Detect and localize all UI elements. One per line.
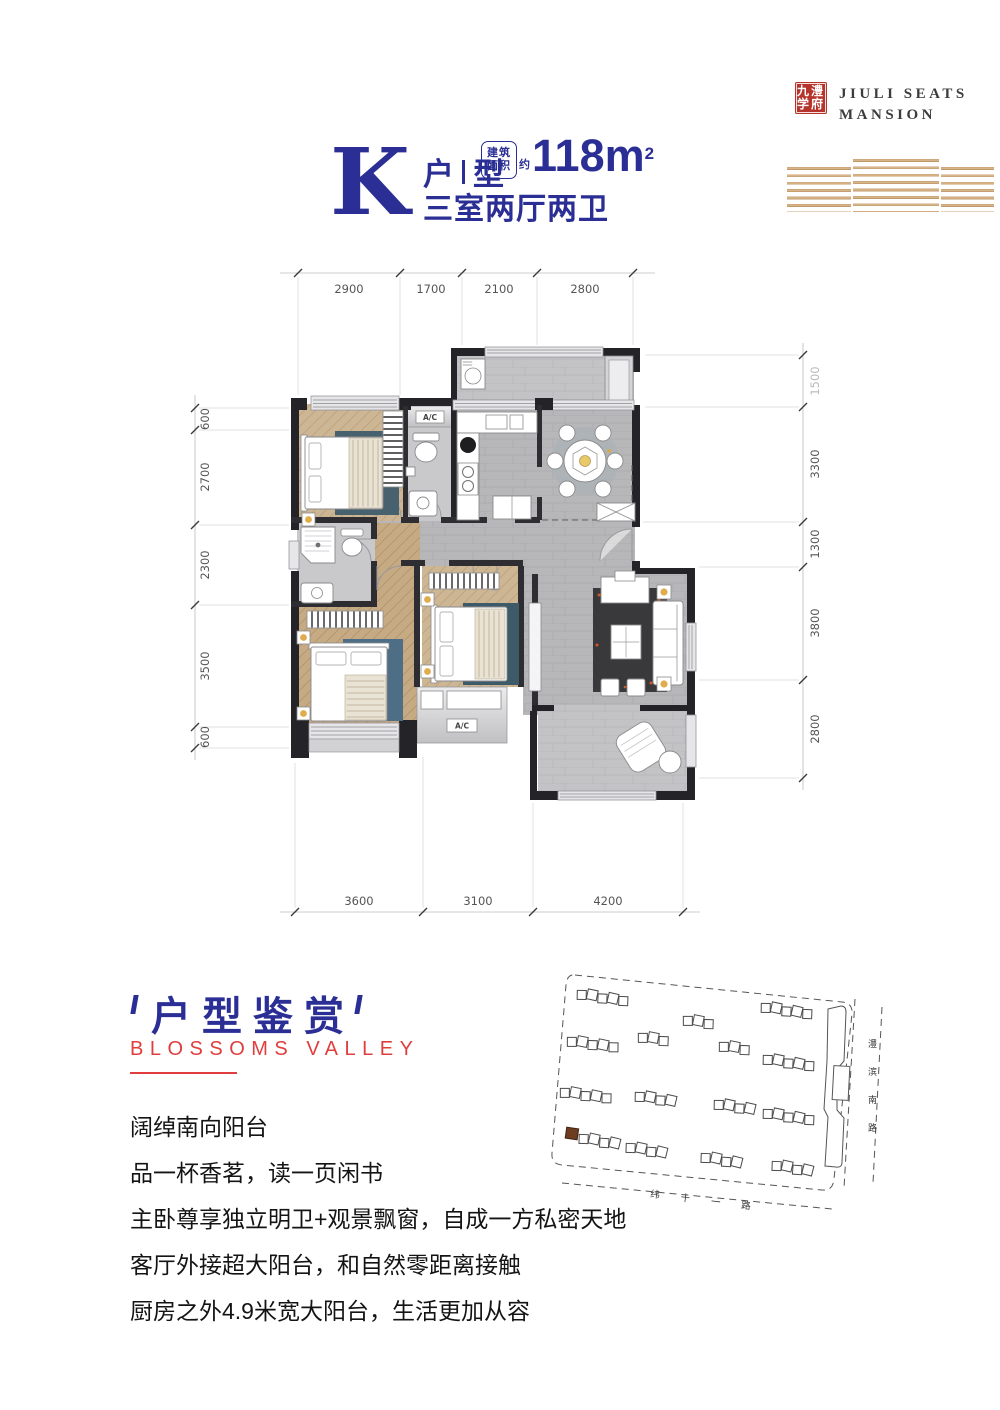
brand-name-line1: JIULI SEATS (839, 84, 968, 105)
dim-bottom-2: 3100 (463, 894, 492, 908)
dim-left-2: 2700 (198, 462, 212, 491)
section-subheading: BLOSSOMS VALLEY (130, 1038, 419, 1061)
logo-row2: 学府 (797, 98, 825, 111)
area-value: 118m2 (532, 133, 654, 178)
brand-name-line2: MANSION (839, 105, 968, 126)
dim-left-3: 2300 (198, 550, 212, 579)
gold-stripe-middle (853, 159, 939, 212)
sitemap-svg: 纬 十 一 路 澧 滨 南 路 (540, 955, 1000, 1225)
sitemap-strip-block (832, 1066, 850, 1101)
dim-top-4: 2800 (570, 282, 599, 296)
area-box-line1: 建筑 (482, 147, 516, 160)
brochure-page: 九澧 学府 JIULI SEATS MANSION K 户 型 建筑 面积 约 … (0, 0, 1000, 1410)
quote-mark-left (130, 995, 138, 1014)
gold-stripe-left (787, 167, 851, 212)
dim-right-3: 1300 (808, 529, 822, 558)
unit-letter: K (330, 136, 410, 228)
tall-window (529, 603, 541, 691)
area-label-box: 建筑 面积 (481, 141, 517, 179)
svg-text:滨: 滨 (868, 1066, 877, 1078)
ac-label-bottom: A/C (455, 722, 470, 731)
area-superscript: 2 (645, 144, 654, 163)
dim-right-4: 3800 (808, 608, 822, 637)
svg-text:南: 南 (868, 1094, 877, 1106)
brand-logo-seal: 九澧 学府 (795, 82, 827, 114)
dim-bottom-1: 3600 (344, 894, 373, 908)
rooms-line: 三室两厅两卫 (423, 184, 609, 228)
unit-type-divider (462, 160, 465, 184)
svg-text:路: 路 (868, 1122, 877, 1134)
dim-top-2: 1700 (416, 282, 445, 296)
quote-mark-right (354, 995, 362, 1014)
dim-left-1: 600 (198, 408, 212, 430)
dim-left-5: 600 (198, 726, 212, 748)
description-line: 客厅外接超大阳台，和自然零距离接触 (130, 1254, 626, 1277)
dim-left-4: 3500 (198, 651, 212, 680)
dim-right-2: 3300 (808, 449, 822, 478)
description-line: 厨房之外4.9米宽大阳台，生活更加从容 (130, 1300, 626, 1323)
gold-stripe-right (941, 167, 994, 212)
ac-label-top: A/C (423, 413, 438, 422)
dim-right-5: 2800 (808, 714, 822, 743)
dim-top-1: 2900 (334, 282, 363, 296)
road-label-right: 澧 滨 南 路 (868, 1038, 877, 1134)
brand-name: JIULI SEATS MANSION (839, 84, 968, 126)
top-balcony (461, 359, 485, 389)
svg-text:澧: 澧 (868, 1038, 877, 1050)
section-heading: 户型鉴赏 (151, 984, 355, 1042)
highlighted-building (565, 1127, 578, 1140)
area-box-line2: 面积 (482, 160, 516, 173)
sitemap-buildings (559, 988, 815, 1177)
living-room (593, 571, 683, 696)
dim-top-3: 2100 (484, 282, 513, 296)
floorplan-svg: A/C A/C (185, 255, 850, 935)
road-label-bottom: 纬 十 一 路 (650, 1188, 761, 1213)
red-underline (130, 1072, 237, 1074)
dim-right-1: 1500 (808, 366, 822, 395)
area-approx: 约 (519, 156, 530, 172)
dim-bottom-3: 4200 (593, 894, 622, 908)
